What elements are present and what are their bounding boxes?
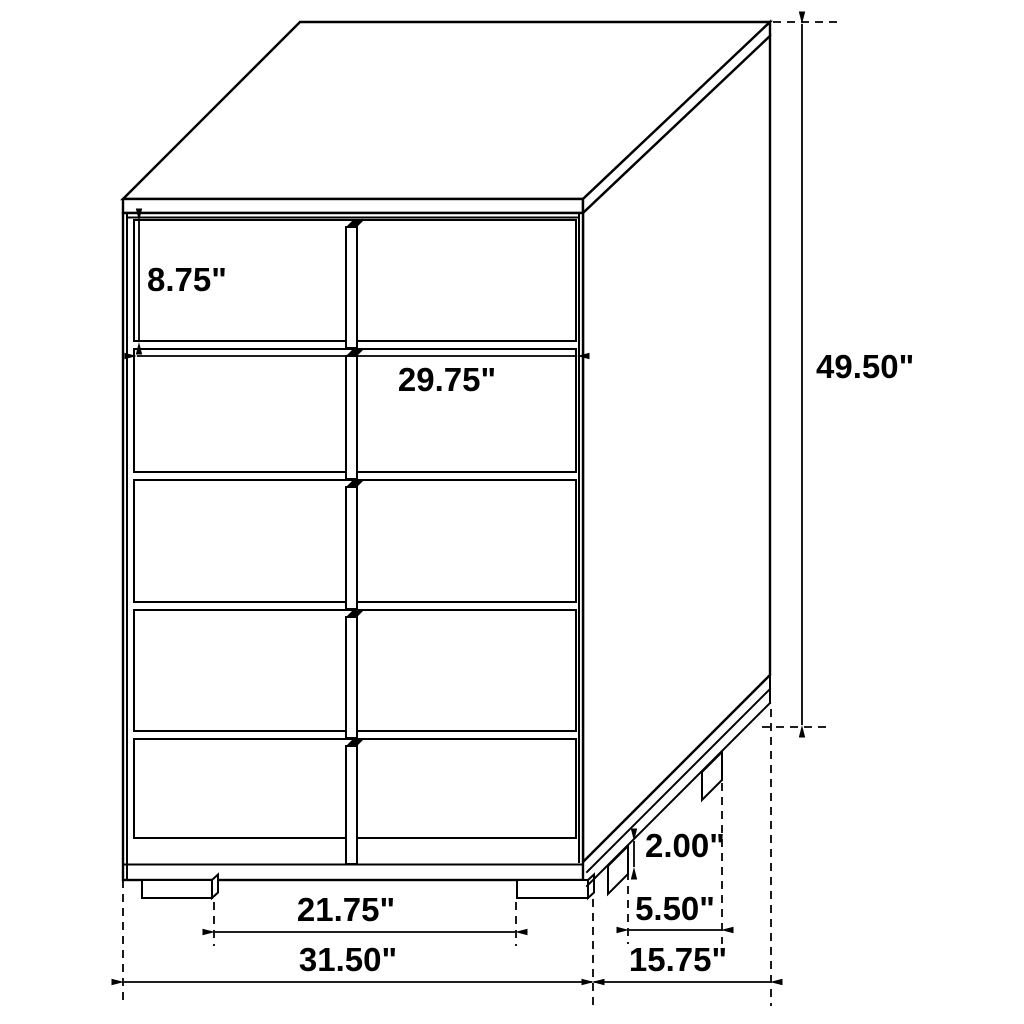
dim-leg-height-label: 2.00": [645, 827, 725, 864]
chest-body: [123, 22, 770, 898]
dim-front-leg-spacing-label: 21.75": [297, 891, 395, 928]
chest-dimension-diagram: 8.75" 29.75" 49.50" 2.00" 5.50": [0, 0, 1024, 1024]
front-right-leg-side: [588, 875, 594, 899]
drawer-3-handle: [346, 487, 357, 609]
chest-top-front-edge: [123, 199, 583, 213]
drawer-5-handle: [346, 746, 357, 864]
front-right-leg: [517, 880, 588, 898]
dim-overall-height-label: 49.50": [816, 348, 914, 385]
dim-front-leg-spacing: 21.75": [214, 891, 516, 946]
dim-leg-height: 2.00": [634, 827, 725, 867]
dim-drawer-width-label: 29.75": [398, 361, 496, 398]
dim-depth-label: 15.75": [629, 941, 727, 978]
front-left-leg-side: [212, 875, 218, 899]
dim-overall-width-label: 31.50": [299, 941, 397, 978]
dim-overall-height: 49.50": [762, 22, 914, 727]
drawer-2-handle: [346, 356, 357, 479]
side-back-leg: [702, 752, 722, 800]
drawer-1-handle: [346, 227, 357, 348]
dim-side-leg-spacing-label: 5.50": [635, 890, 715, 927]
front-left-leg: [142, 880, 212, 898]
drawer-4-handle: [346, 617, 357, 738]
dimension-diagram-page: 8.75" 29.75" 49.50" 2.00" 5.50": [0, 0, 1024, 1024]
side-front-leg: [608, 846, 628, 894]
dim-drawer-height-label: 8.75": [147, 261, 227, 298]
